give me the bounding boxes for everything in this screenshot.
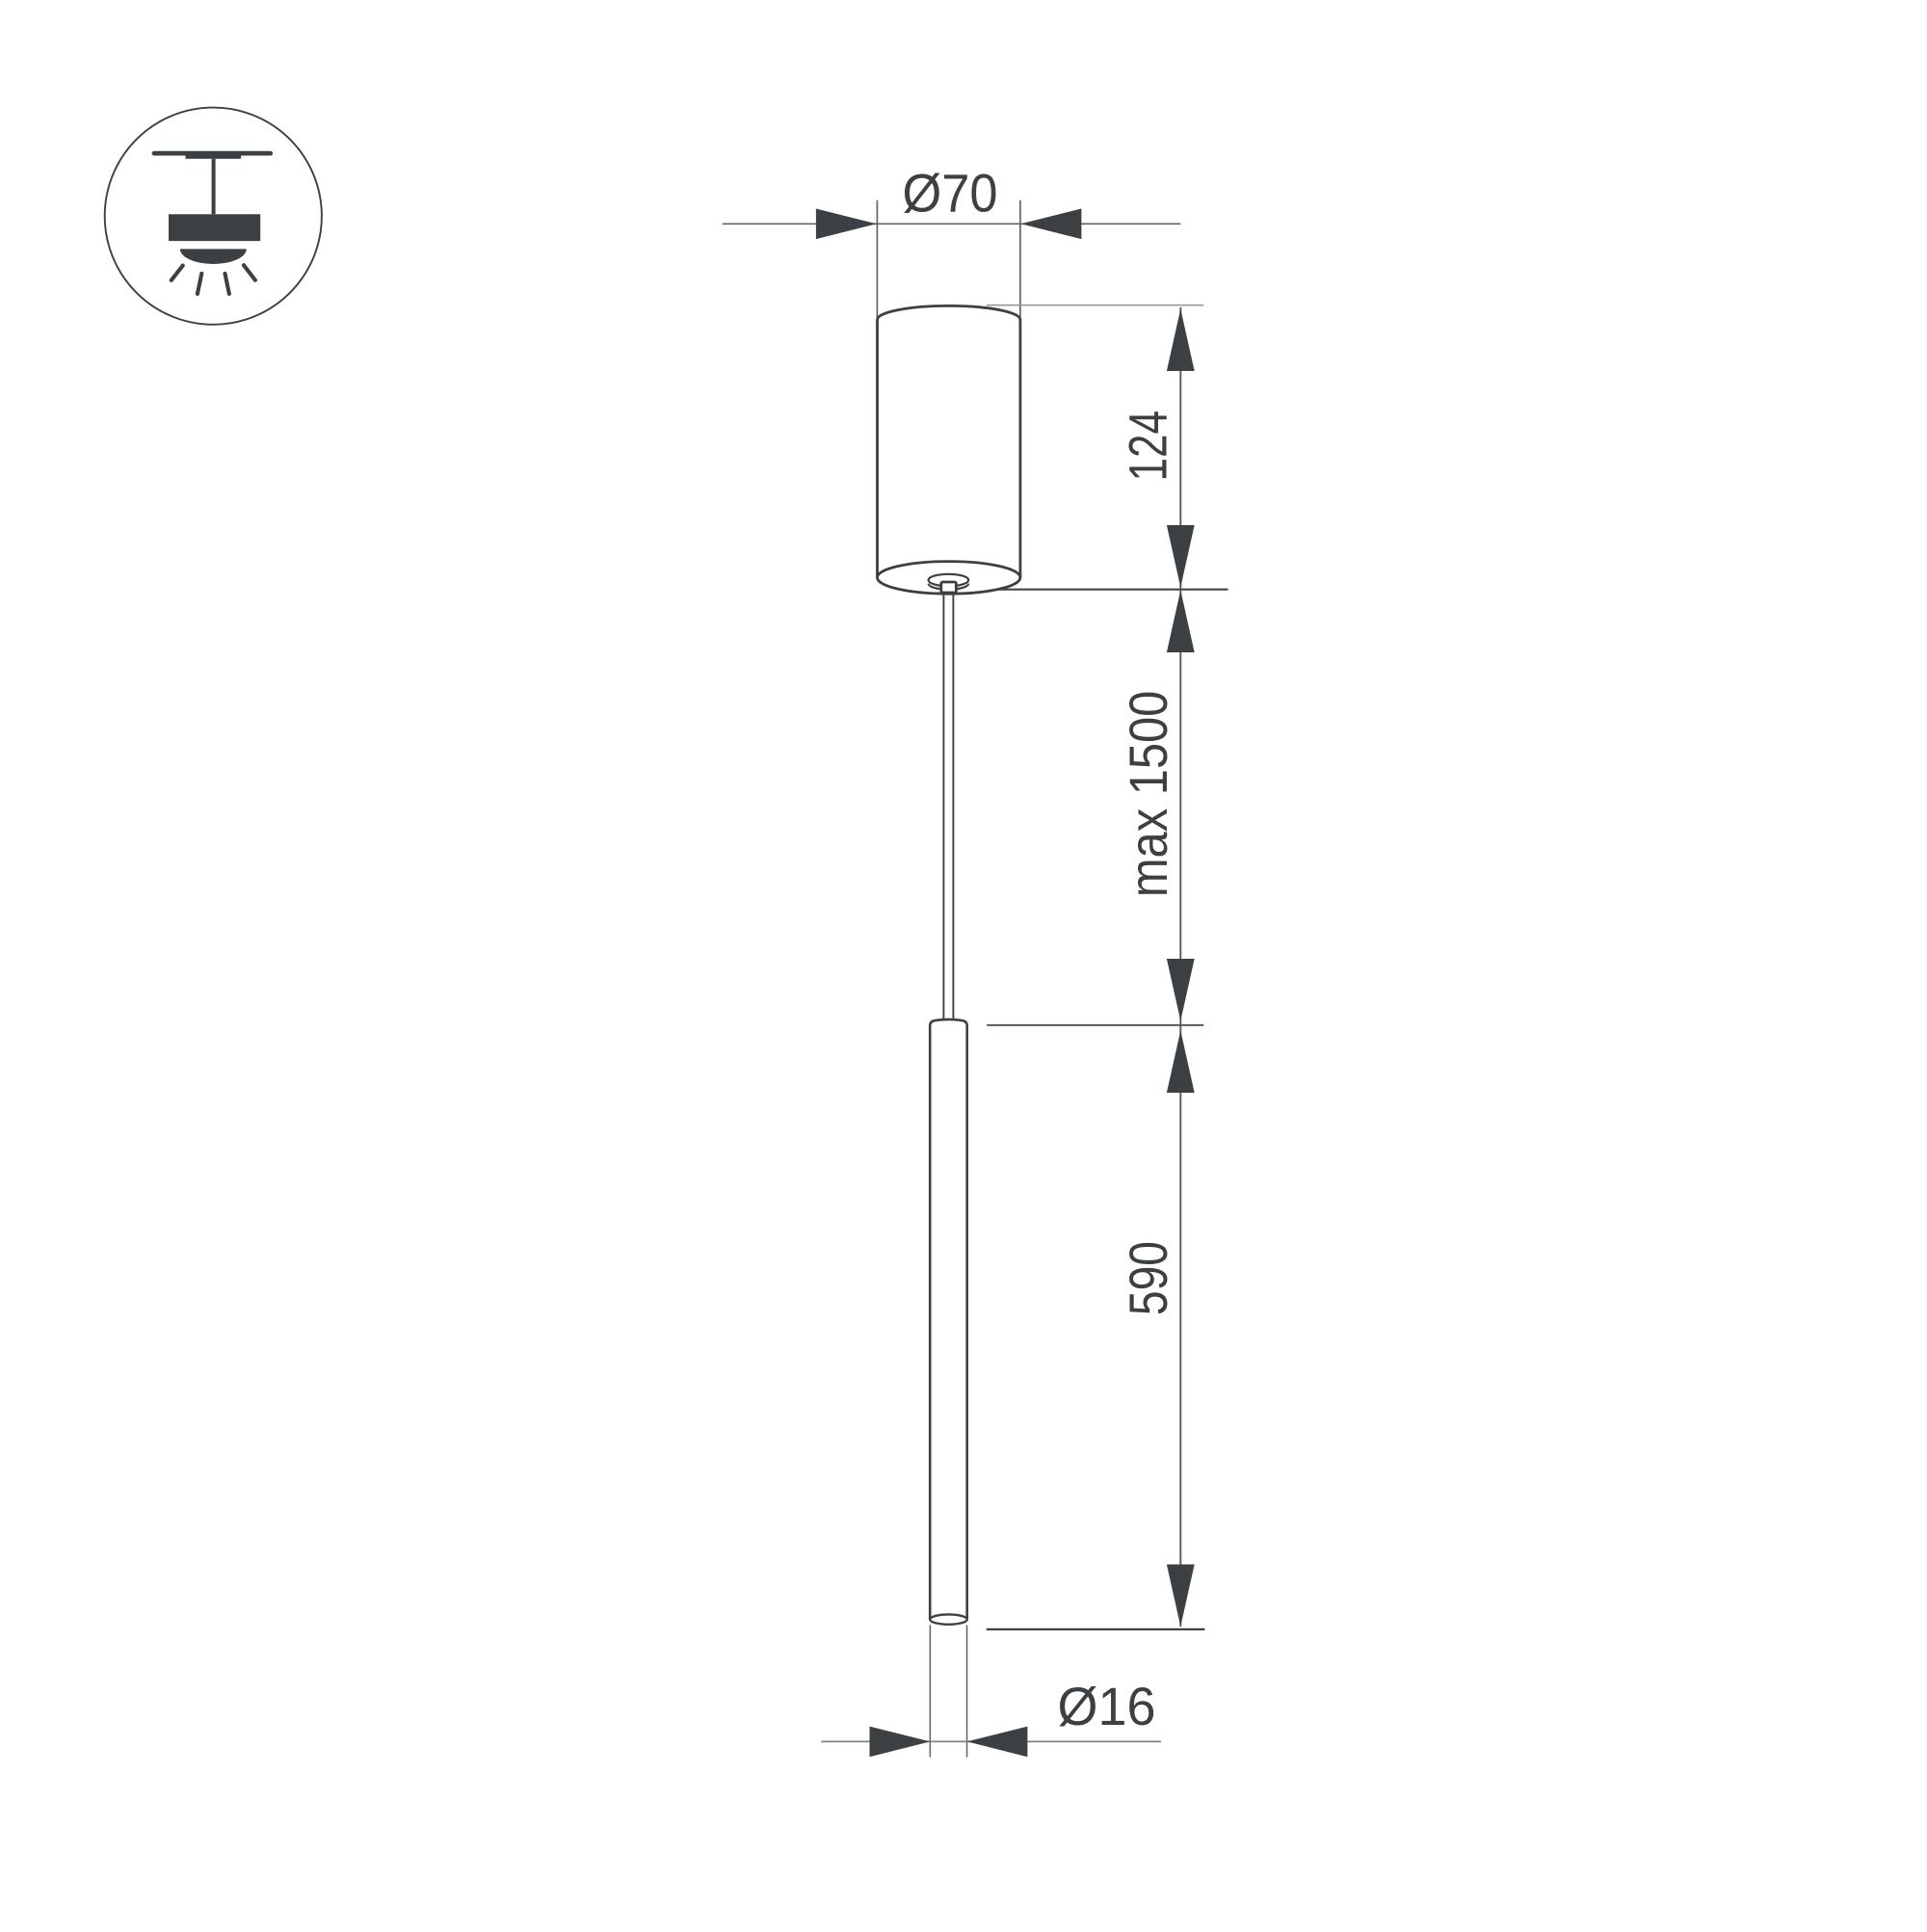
- svg-text:590: 590: [1119, 1241, 1178, 1315]
- svg-text:124: 124: [1119, 410, 1178, 482]
- svg-text:max 1500: max 1500: [1119, 691, 1178, 898]
- svg-text:Ø70: Ø70: [903, 164, 998, 224]
- svg-text:Ø16: Ø16: [1058, 1677, 1156, 1736]
